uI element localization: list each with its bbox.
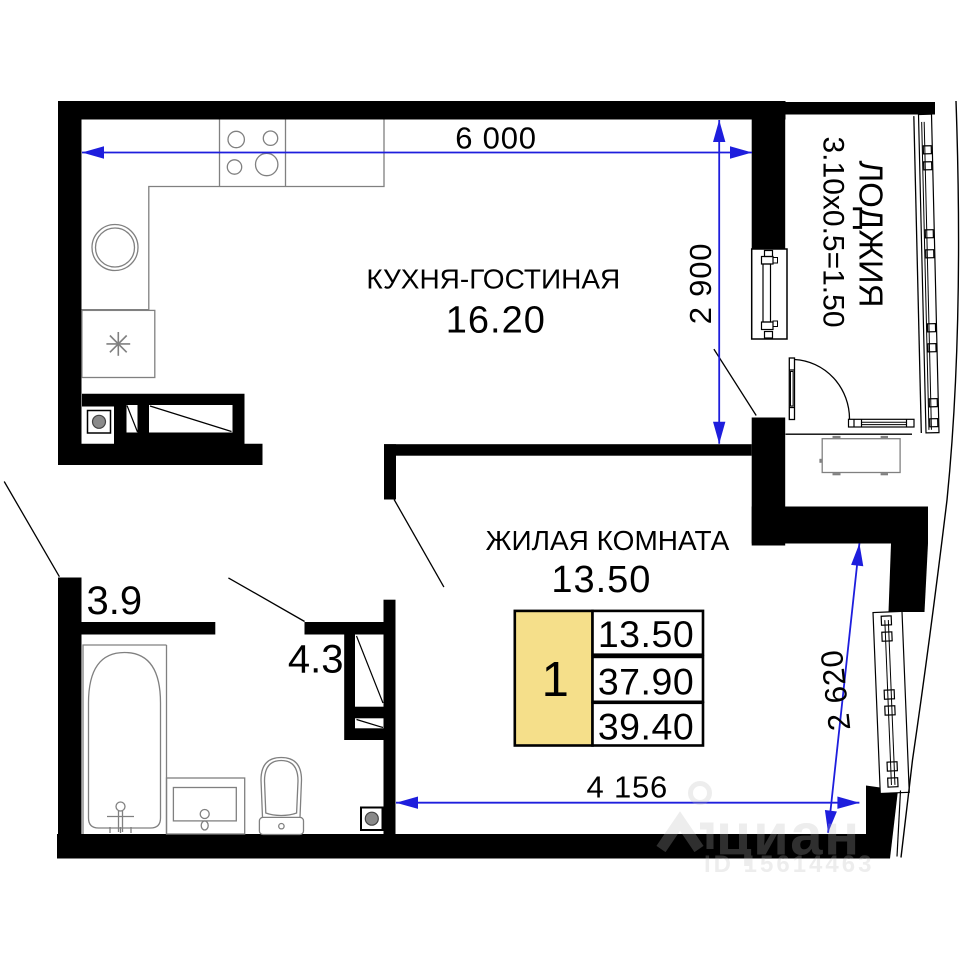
svg-text:ЖИЛАЯ КОМНАТА: ЖИЛАЯ КОМНАТА: [486, 525, 730, 556]
svg-text:4.3: 4.3: [288, 638, 344, 682]
svg-text:16.20: 16.20: [446, 300, 546, 342]
svg-text:ЛОДЖИЯ: ЛОДЖИЯ: [853, 161, 890, 308]
svg-text:3.9: 3.9: [87, 579, 143, 623]
svg-text:ID 15614463: ID 15614463: [704, 851, 874, 878]
svg-text:6 000: 6 000: [455, 121, 537, 156]
svg-text:1: 1: [542, 653, 569, 707]
svg-text:2 900: 2 900: [683, 243, 718, 325]
svg-text:39.40: 39.40: [598, 706, 694, 748]
svg-text:37.90: 37.90: [598, 661, 694, 703]
svg-text:КУХНЯ-ГОСТИНАЯ: КУХНЯ-ГОСТИНАЯ: [366, 263, 620, 294]
svg-text:13.50: 13.50: [551, 559, 651, 601]
svg-text:4 156: 4 156: [587, 769, 669, 804]
svg-text:3.10x0.5=1.50: 3.10x0.5=1.50: [817, 136, 850, 327]
svg-text:13.50: 13.50: [598, 613, 694, 655]
